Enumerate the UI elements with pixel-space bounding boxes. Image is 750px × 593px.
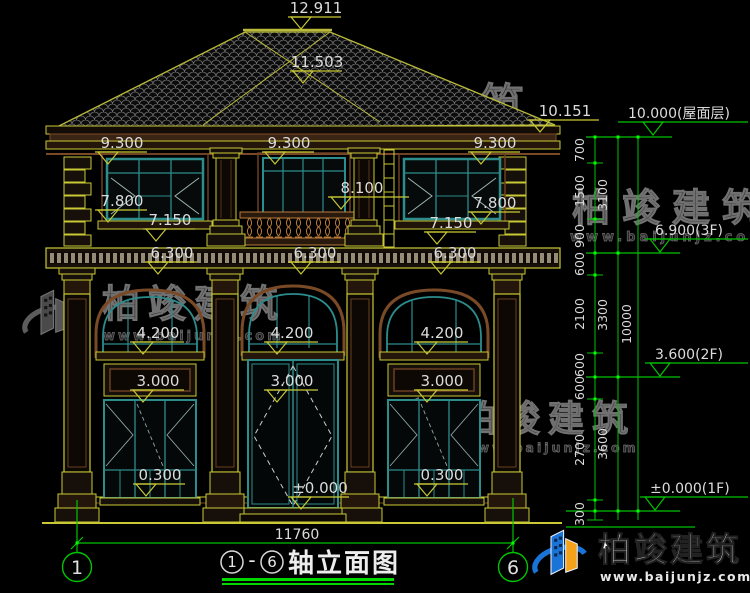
lintel bbox=[380, 352, 488, 360]
elev-upper-roof: 11.503 bbox=[291, 53, 344, 71]
total-width-dimension: 11760 bbox=[275, 527, 320, 543]
elev-4200-center: 4.200 bbox=[271, 324, 314, 342]
title-dash: - bbox=[248, 548, 255, 572]
brand-name: 柏竣建筑 bbox=[598, 530, 742, 569]
elev-0300-left: 0.300 bbox=[139, 466, 182, 484]
dim-600: 600 bbox=[572, 353, 587, 377]
drawing-title: 1 - 6 轴立面图 bbox=[221, 548, 400, 585]
watermark-url: www.baijunjz.com bbox=[463, 440, 639, 455]
brand-logo-block: 柏竣建筑 www.baijunjz.com bbox=[535, 530, 750, 584]
pilaster bbox=[485, 268, 529, 522]
lintel bbox=[96, 352, 204, 360]
elev-0300-right: 0.300 bbox=[421, 466, 464, 484]
door-step bbox=[240, 514, 346, 522]
balustrade-top-rail bbox=[240, 212, 354, 218]
dim-3600: 3600 bbox=[595, 428, 610, 460]
dim-600: 600 bbox=[572, 376, 587, 400]
dim-2700: 2700 bbox=[572, 434, 587, 466]
level-2f: 3.600(2F) bbox=[655, 347, 723, 363]
elev-6300-center: 6.300 bbox=[294, 244, 337, 262]
window-sill bbox=[100, 498, 200, 505]
level-roof: 10.000(屋面层) bbox=[628, 106, 730, 122]
elev-4200-left: 4.200 bbox=[137, 324, 180, 342]
elev-9300-right: 9.300 bbox=[474, 134, 517, 152]
dim-700: 700 bbox=[572, 138, 587, 162]
roof bbox=[55, 30, 555, 128]
elev-9300-left: 9.300 bbox=[101, 134, 144, 152]
dim-1500: 1500 bbox=[572, 175, 587, 207]
elev-6300-left: 6.300 bbox=[151, 244, 194, 262]
quoins-left bbox=[64, 157, 91, 246]
elev-6300-right: 6.300 bbox=[434, 244, 477, 262]
balcony-balustrade bbox=[238, 212, 356, 245]
axis-number-1: 1 bbox=[71, 557, 83, 579]
drawing-canvas: 柏竣建筑 www.baijunjz.com 柏竣建筑 www.baijunjz.… bbox=[0, 0, 750, 593]
elev-0000: ±0.000 bbox=[292, 479, 348, 497]
elev-7150-right: 7.150 bbox=[430, 214, 473, 232]
window-sill bbox=[384, 498, 484, 505]
page-title: 轴立面图 bbox=[288, 548, 400, 579]
elev-7800-right: 7.800 bbox=[474, 194, 517, 212]
balcony-french-door bbox=[258, 153, 350, 217]
level-3f: 6.900(3F) bbox=[655, 223, 723, 239]
title-underline bbox=[222, 578, 394, 581]
elev-9300-center: 9.300 bbox=[268, 134, 311, 152]
title-axis-end: 6 bbox=[267, 553, 277, 571]
elev-8100: 8.100 bbox=[341, 179, 384, 197]
dim-3100: 3100 bbox=[595, 179, 610, 211]
balcony-column-left bbox=[207, 148, 245, 246]
dim-300: 300 bbox=[572, 502, 587, 526]
elev-ridge: 12.911 bbox=[290, 0, 343, 17]
lintel bbox=[242, 352, 344, 360]
axis-number-6: 6 bbox=[507, 557, 519, 579]
dim-600: 600 bbox=[572, 252, 587, 276]
elev-3000-left: 3.000 bbox=[137, 372, 180, 390]
elev-3000-center: 3.000 bbox=[271, 372, 314, 390]
dim-3300: 3300 bbox=[595, 299, 610, 331]
dim-900: 900 bbox=[572, 224, 587, 248]
elev-7150-left: 7.150 bbox=[149, 211, 192, 229]
brand-logo-icon bbox=[535, 530, 585, 574]
elev-eave: 10.151 bbox=[539, 102, 592, 120]
bay-corner-strip bbox=[384, 150, 394, 247]
level-markers: 10.000(屋面层) 6.900(3F) 3.600(2F) ±0.000(1… bbox=[566, 106, 748, 527]
brand-url: www.baijunjz.com bbox=[600, 569, 750, 584]
elev-7800-left: 7.800 bbox=[101, 192, 144, 210]
dim-10000: 10000 bbox=[619, 304, 634, 344]
cad-elevation-drawing: 柏竣建筑 www.baijunjz.com 柏竣建筑 www.baijunjz.… bbox=[0, 0, 750, 593]
threshold bbox=[244, 508, 342, 514]
title-underline-2 bbox=[222, 583, 394, 585]
title-axis-start: 1 bbox=[227, 553, 237, 571]
level-1f: ±0.000(1F) bbox=[650, 481, 730, 497]
elev-4200-right: 4.200 bbox=[421, 324, 464, 342]
elev-3000-right: 3.000 bbox=[421, 372, 464, 390]
dim-2100: 2100 bbox=[572, 298, 587, 330]
